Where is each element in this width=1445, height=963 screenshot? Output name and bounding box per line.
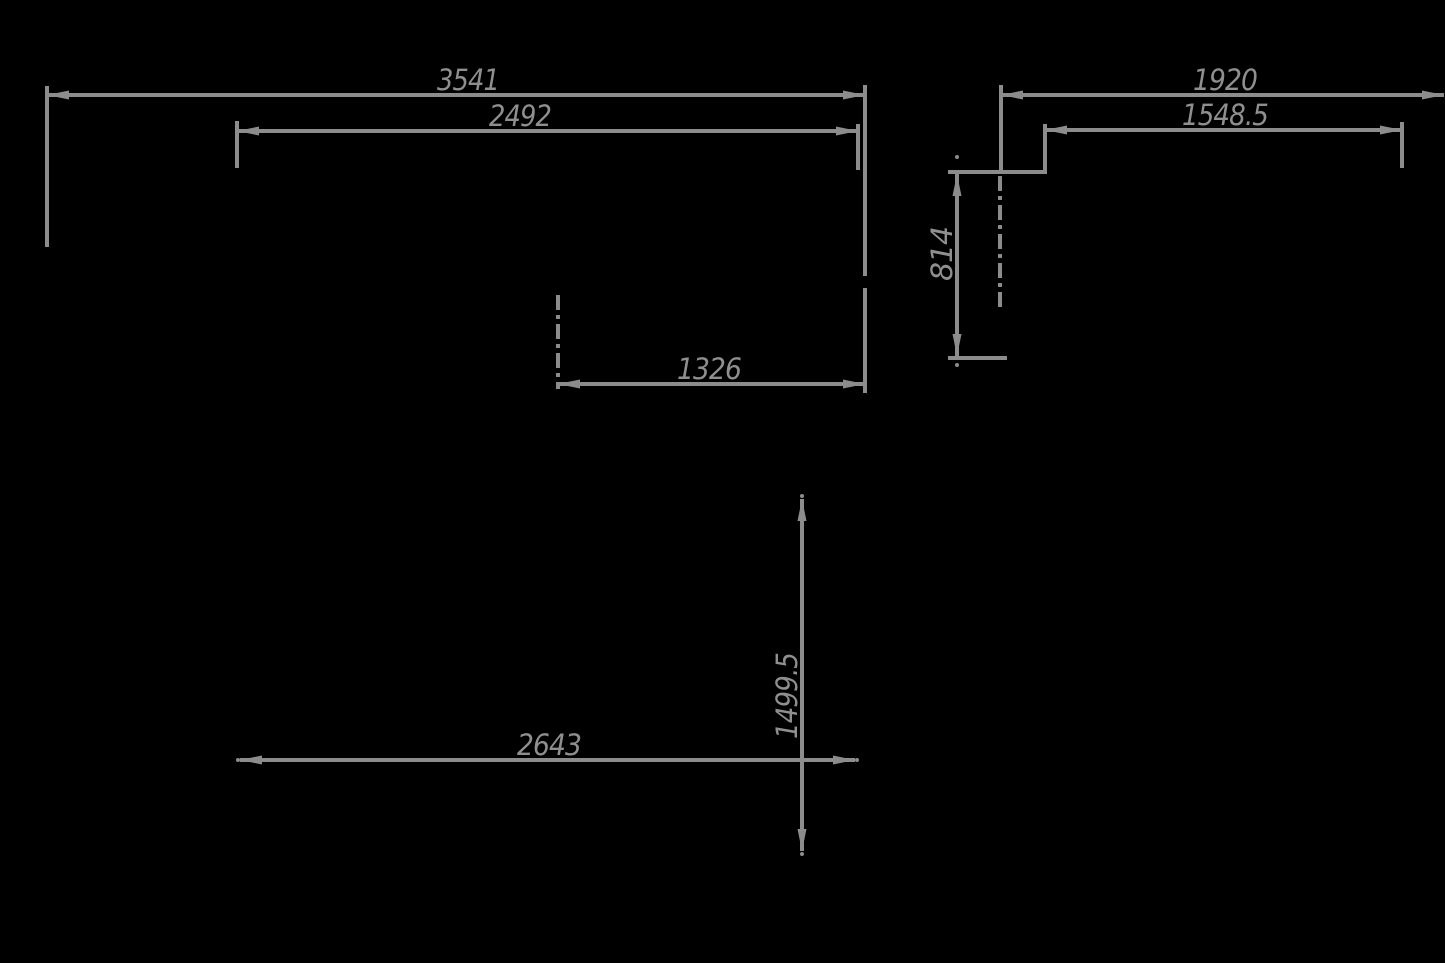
dimension-plan-center-offset: 1326 <box>558 295 865 389</box>
arrowhead-right-icon <box>1422 91 1444 100</box>
arrowhead-right-icon <box>1380 126 1402 135</box>
arrowhead-left-icon <box>47 91 69 100</box>
dimension-plan-inner-width: 2492 <box>237 99 858 170</box>
dimension-value: 2643 <box>517 728 581 762</box>
dimension-value: 1548.5 <box>1182 98 1268 132</box>
arrowhead-right-icon <box>843 380 865 389</box>
arrowhead-up-icon <box>798 499 807 521</box>
dimension-plan-overall-width: 3541 <box>47 63 865 393</box>
arrowhead-down-icon <box>798 829 807 851</box>
dimension-point-dot <box>855 758 859 762</box>
arrowhead-down-icon <box>953 334 962 356</box>
arrowhead-up-icon <box>953 174 962 196</box>
dimension-value: 1920 <box>1193 63 1257 97</box>
arrowhead-left-icon <box>1045 126 1067 135</box>
technical-drawing-canvas: 3541 2492 1326 2643 <box>0 0 1445 963</box>
arrowhead-left-icon <box>558 380 580 389</box>
dimension-point-dot <box>955 155 959 159</box>
dimension-value: 1499.5 <box>770 653 804 739</box>
dimension-point-dot <box>236 758 240 762</box>
dimension-drawing: 3541 2492 1326 2643 <box>0 0 1445 963</box>
arrowhead-right-icon <box>836 127 858 136</box>
dimension-point-dot <box>800 852 804 856</box>
dimension-point-dot <box>800 494 804 498</box>
dimension-value: 3541 <box>437 63 499 97</box>
dimension-value: 2492 <box>489 99 551 133</box>
dimension-side-height: 814 <box>925 155 962 367</box>
arrowhead-left-icon <box>240 756 262 765</box>
side-profile-outline <box>948 172 1047 358</box>
dimension-side-inner-width: 1548.5 <box>1045 98 1402 172</box>
arrowhead-right-icon <box>843 91 865 100</box>
dimension-point-dot <box>955 363 959 367</box>
arrowhead-right-icon <box>833 756 855 765</box>
dimension-value: 1326 <box>677 352 741 386</box>
dimension-plan-lower-width: 2643 <box>236 728 859 765</box>
dimension-value: 814 <box>925 227 959 281</box>
dimension-plan-depth: 1499.5 <box>770 494 807 856</box>
arrowhead-left-icon <box>237 127 259 136</box>
arrowhead-left-icon <box>1001 91 1023 100</box>
